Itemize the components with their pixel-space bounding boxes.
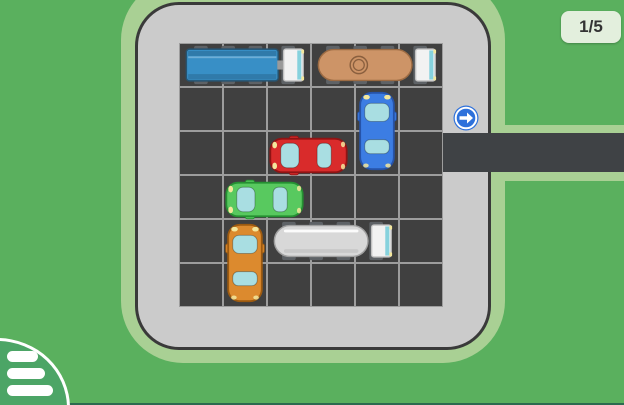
level-indicator: 1/5 [561, 11, 621, 43]
vehicle-tan-tanker[interactable] [313, 45, 441, 90]
exit-road [443, 133, 624, 172]
vehicle-white-tanker[interactable] [269, 221, 397, 266]
menu-button[interactable] [0, 338, 70, 405]
vehicle-blue-car[interactable] [357, 89, 397, 178]
exit-arrow-icon [453, 105, 479, 131]
vehicle-red-car[interactable] [267, 136, 356, 176]
exit-arrow-sign [453, 105, 479, 131]
game-screen: 1/5 [0, 0, 624, 405]
puzzle-grid [179, 43, 443, 307]
vehicle-orange-car[interactable] [225, 221, 265, 310]
vehicle-green-car[interactable] [223, 180, 312, 220]
vehicle-blue-truck[interactable] [181, 45, 309, 90]
level-indicator-text: 1/5 [579, 17, 603, 37]
